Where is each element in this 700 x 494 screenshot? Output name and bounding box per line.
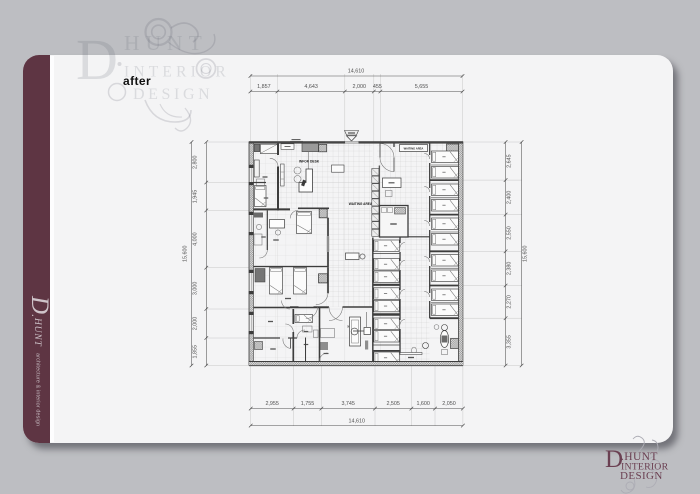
svg-text:DESIGN: DESIGN [620,470,663,482]
